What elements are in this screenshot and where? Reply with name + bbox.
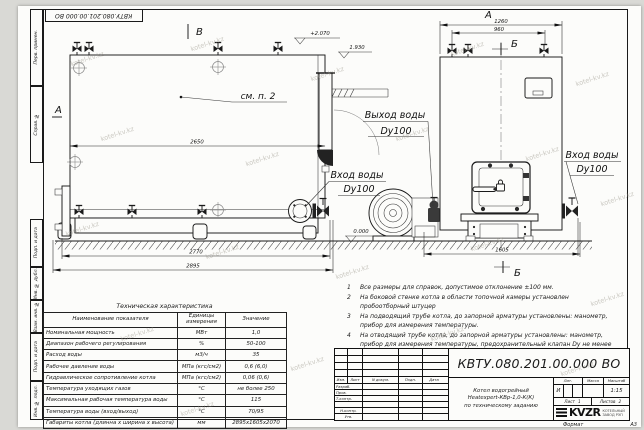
- spec-cell: 35: [226, 350, 287, 361]
- company-block: KVZR КОТЕЛЬНЫЙ ЗАВОД РЭП: [554, 406, 629, 421]
- spec-cell: Номинальная мощность: [44, 327, 178, 338]
- mass-value: [583, 385, 604, 397]
- spec-cell: Габариты котла (длинна х ширина х высота…: [44, 417, 178, 428]
- spec-cell: 1,0: [226, 327, 287, 338]
- spec-cell: МВт: [178, 327, 226, 338]
- valve-icon: [464, 45, 473, 58]
- spec-table: Техническая характеристика Наименование …: [43, 303, 286, 429]
- revision-table: Изм. Лист N докум. Подп. Дата Разраб. Пр…: [335, 349, 449, 420]
- product-title: Котел водогрейный Heatexpert-КВр-1,0-К(К…: [449, 378, 554, 420]
- note-text: Все размеры для справок, допустимое откл…: [360, 284, 614, 293]
- spec-cell: 115: [226, 395, 287, 406]
- spec-cell: 70/95: [226, 406, 287, 417]
- water-inlet-front-label: Вход воды Dy100: [564, 150, 621, 256]
- spec-cell: °С: [178, 383, 226, 394]
- spec-header-cell: Значение: [226, 313, 287, 328]
- scale-header: Масштаб: [604, 378, 629, 384]
- elevation-1930: 1.930: [349, 45, 365, 51]
- dim-2770: 2770: [189, 250, 203, 256]
- water-inlet-valve-front: [562, 198, 579, 219]
- spec-header-row: Наименование показателя Единицы измерени…: [44, 313, 287, 328]
- spec-cell: 2895х1605х2070: [226, 417, 287, 428]
- spec-cell: 0,6 (6,0): [226, 361, 287, 372]
- dim-1260: 1260: [494, 19, 508, 25]
- revision-header-row: Изм. Лист N докум. Подп. Дата: [335, 377, 448, 384]
- spec-row: Номинальная мощность МВт 1,0: [44, 327, 287, 338]
- spec-cell: %: [178, 338, 226, 349]
- view-label-a: А: [484, 10, 492, 21]
- spec-table-title: Техническая характеристика: [43, 303, 286, 310]
- spec-cell: Температура уходящих газов: [44, 383, 178, 394]
- role-label: Утв.: [335, 414, 363, 420]
- mass-header: Масса: [583, 378, 604, 384]
- svg-text:Выход воды: Выход воды: [365, 110, 426, 121]
- section-label-a-side: А: [54, 105, 62, 116]
- side-view: [55, 43, 388, 240]
- title-block: Изм. Лист N докум. Подп. Дата Разраб. Пр…: [334, 348, 630, 421]
- note-text: На подводящий трубе котла, до запорной а…: [360, 313, 614, 330]
- dim-2650: 2650: [190, 140, 204, 146]
- elevation-0000: 0.000: [353, 229, 369, 235]
- valve-icon: [73, 43, 82, 56]
- spec-cell: мм: [178, 417, 226, 428]
- doc-number: КВТУ.080.201.00.000 ВО: [449, 349, 629, 378]
- dim-2895: 2895: [186, 264, 200, 270]
- spec-row: Гидравлическое сопротивление котла МПа (…: [44, 372, 287, 383]
- spec-cell: МПа (кгс/см2): [178, 372, 226, 383]
- section-label-v: В: [196, 27, 203, 38]
- role-label: [335, 402, 363, 407]
- spec-cell: °С: [178, 406, 226, 417]
- spec-row: Рабочее давление воды МПа (кгс/см2) 0,6 …: [44, 361, 287, 372]
- furnace-door: [472, 162, 530, 213]
- role-label: Н.контр.: [335, 408, 363, 413]
- spec-cell: Гидравлическое сопротивление котла: [44, 372, 178, 383]
- spec-cell: м3/ч: [178, 350, 226, 361]
- svg-text:Dy100: Dy100: [343, 184, 374, 195]
- sheet-cell: Лист 1: [554, 398, 592, 405]
- spec-row: Максимальная рабочая температура воды °С…: [44, 395, 287, 406]
- note-number: 2: [347, 294, 360, 311]
- spec-cell: °С: [178, 395, 226, 406]
- blueprint-page: { "watermark": {"text": "kotel-kv.kz"}, …: [0, 0, 644, 430]
- spec-header-cell: Наименование показателя: [44, 313, 178, 328]
- role-label: Разраб.: [335, 384, 363, 389]
- spec-cell: МПа (кгс/см2): [178, 361, 226, 372]
- pedestal: [461, 214, 538, 241]
- role-label: Пров.: [335, 390, 363, 395]
- sheets-cell: Листов 2: [592, 398, 629, 405]
- valve-icon: [540, 45, 549, 58]
- section-label-b-top: Б: [511, 39, 518, 50]
- spec-cell: Диапазон рабочего регулирования: [44, 338, 178, 349]
- note-item: 2 На боковой стенке котла в области топо…: [347, 294, 614, 311]
- spec-cell: Рабочее давление воды: [44, 361, 178, 372]
- spec-row: Температура воды (вход/выход) °С 70/95: [44, 406, 287, 417]
- note-number: 3: [347, 313, 360, 330]
- valve-icon: [448, 45, 457, 58]
- valve-icon: [214, 43, 223, 56]
- valve-icon: [274, 43, 283, 56]
- spec-row: Габариты котла (длинна х ширина х высота…: [44, 417, 287, 428]
- spec-row: Температура уходящих газов °С не более 2…: [44, 383, 287, 394]
- note-number: 1: [347, 284, 360, 293]
- format-note: Формат А3: [556, 422, 644, 428]
- svg-text:Dy100: Dy100: [576, 164, 607, 175]
- lit-header: Лит.: [554, 378, 583, 384]
- door-handle: [473, 187, 496, 192]
- svg-text:Dy100: Dy100: [380, 126, 411, 137]
- svg-text:Вход воды: Вход воды: [330, 170, 384, 181]
- spec-cell: 50-100: [226, 338, 287, 349]
- ground-hatching: [55, 241, 592, 250]
- spec-cell: не более 250: [226, 383, 287, 394]
- scale-value: 1:15: [604, 385, 629, 397]
- valve-icon: [85, 43, 94, 56]
- spec-header-cell: Единицы измерения: [178, 313, 226, 328]
- note-item: 3 На подводящий трубе котла, до запорной…: [347, 313, 614, 330]
- spec-cell: Максимальная рабочая температура воды: [44, 395, 178, 406]
- note-item: 1 Все размеры для справок, допустимое от…: [347, 284, 614, 293]
- dim-960: 960: [494, 27, 505, 33]
- front-view: [440, 42, 578, 252]
- company-name: КОТЕЛЬНЫЙ ЗАВОД РЭП: [602, 409, 624, 418]
- spec-cell: 0,06 (0,6): [226, 372, 287, 383]
- kvzr-logo-icon: [556, 408, 567, 418]
- spec-row: Диапазон рабочего регулирования % 50-100: [44, 338, 287, 349]
- svg-text:Вход воды: Вход воды: [565, 150, 619, 161]
- dim-1605: 1605: [495, 248, 509, 254]
- spec-cell: Расход воды: [44, 350, 178, 361]
- role-label: Т.контр.: [335, 396, 363, 401]
- combustion-fan: [369, 189, 440, 241]
- note-text: На боковой стенке котла в области топочн…: [360, 294, 614, 311]
- elevation-2070: +2.070: [310, 31, 330, 37]
- section-label-b-bottom: Б: [514, 268, 521, 279]
- spec-cell: Температура воды (вход/выход): [44, 406, 178, 417]
- see-note-label: см. п. 2: [241, 92, 276, 102]
- spec-row: Расход воды м3/ч 35: [44, 350, 287, 361]
- kvzr-logo-text: KVZR: [569, 407, 600, 418]
- lit-value: И: [554, 385, 564, 397]
